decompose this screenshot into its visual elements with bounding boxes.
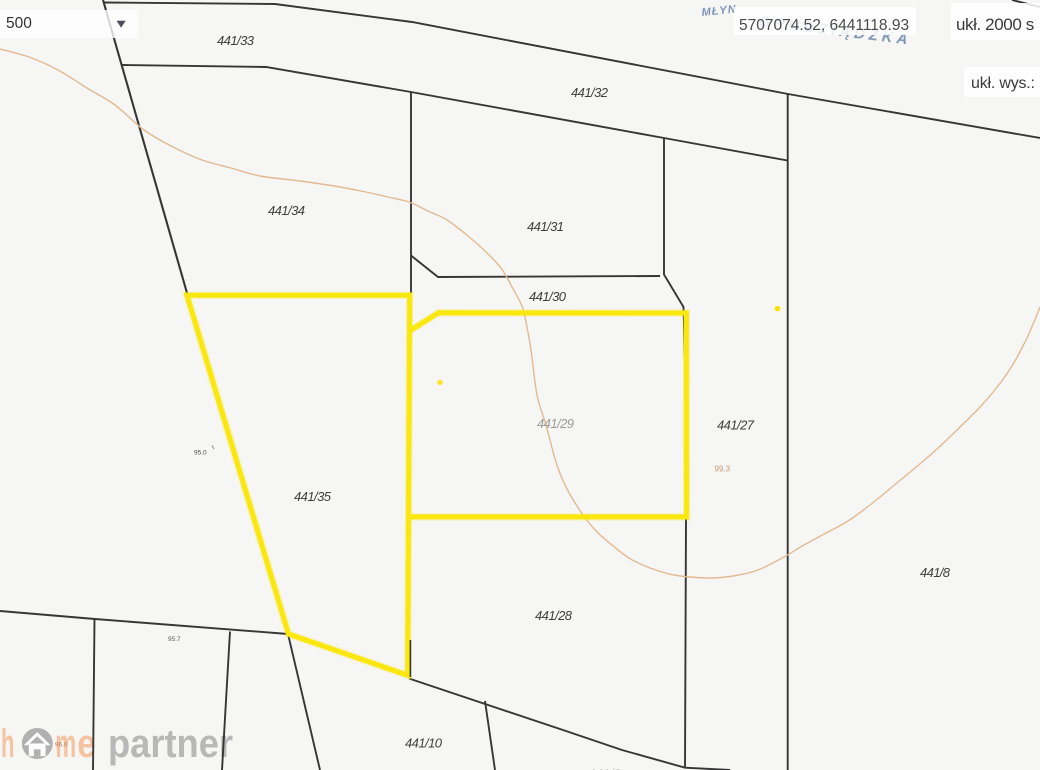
svg-text:95.7: 95.7 bbox=[168, 636, 181, 643]
svg-text:441/31: 441/31 bbox=[527, 219, 564, 234]
svg-text:441/27: 441/27 bbox=[717, 418, 755, 433]
svg-text:partner: partner bbox=[108, 722, 233, 766]
svg-text:MŁYN: MŁYN bbox=[701, 3, 737, 19]
svg-text:441/35: 441/35 bbox=[294, 489, 332, 504]
svg-text:441/10: 441/10 bbox=[405, 736, 443, 751]
svg-text:ukł. wys.:: ukł. wys.: bbox=[971, 75, 1035, 92]
svg-text:441/8: 441/8 bbox=[920, 565, 951, 580]
svg-text:441/32: 441/32 bbox=[571, 85, 609, 100]
svg-text:500: 500 bbox=[6, 15, 32, 32]
svg-text:441/9: 441/9 bbox=[588, 766, 621, 770]
svg-text:441/29: 441/29 bbox=[537, 416, 574, 431]
svg-text:441/28: 441/28 bbox=[535, 608, 573, 623]
svg-text:ukł. 2000 s: ukł. 2000 s bbox=[956, 15, 1034, 34]
svg-text:99.3: 99.3 bbox=[715, 465, 731, 474]
svg-text:441/30: 441/30 bbox=[529, 289, 567, 304]
svg-text:441/33: 441/33 bbox=[217, 33, 255, 48]
svg-text:96.0: 96.0 bbox=[55, 742, 68, 749]
svg-text:h: h bbox=[1, 722, 15, 766]
svg-text:5707074.52, 6441118.93: 5707074.52, 6441118.93 bbox=[739, 17, 909, 34]
svg-text:441/34: 441/34 bbox=[268, 203, 305, 218]
svg-text:95.0: 95.0 bbox=[194, 450, 207, 457]
